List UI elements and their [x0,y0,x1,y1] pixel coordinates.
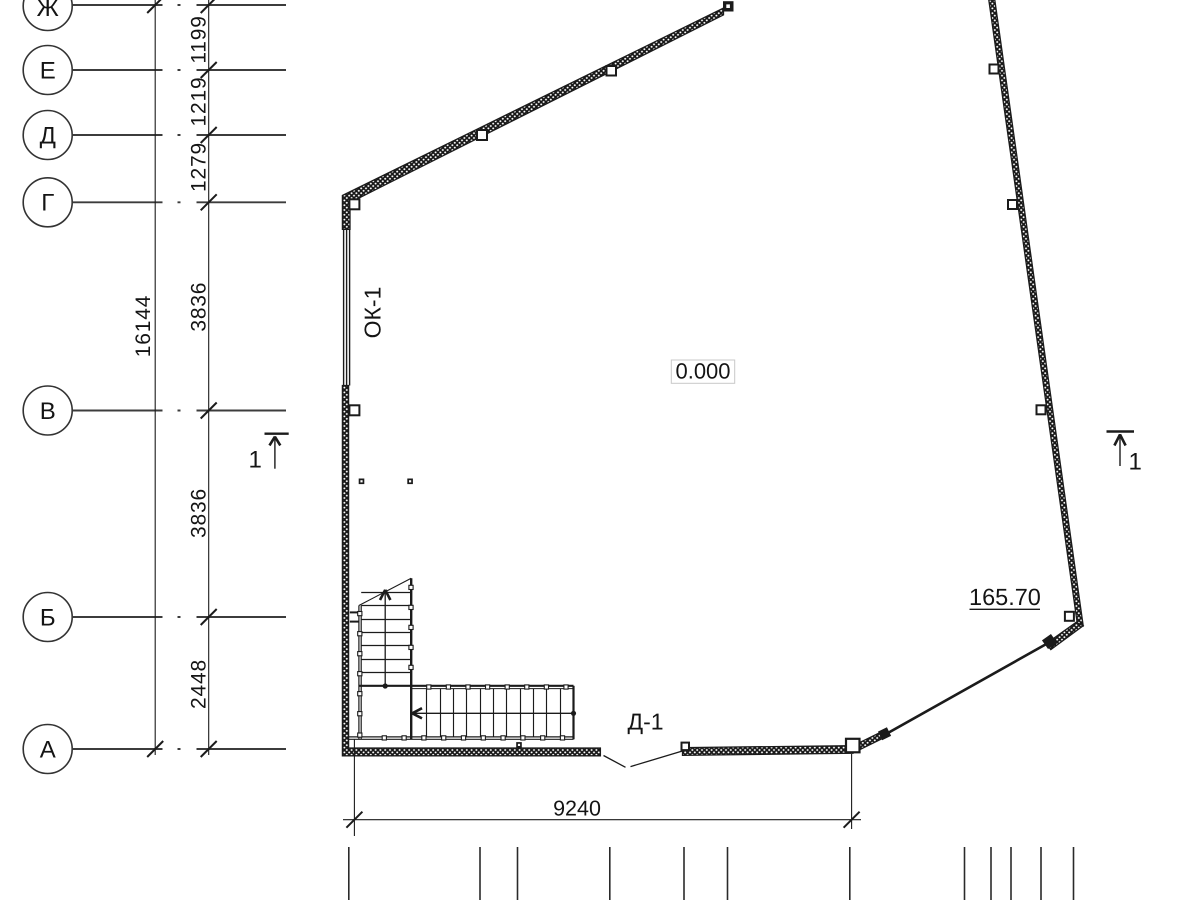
svg-text:165.70: 165.70 [969,584,1041,610]
svg-text:А: А [40,736,56,763]
svg-text:16144: 16144 [132,295,155,357]
svg-text:9240: 9240 [553,797,601,821]
svg-text:1: 1 [249,447,262,474]
svg-text:ОК-1: ОК-1 [360,287,386,339]
svg-text:Е: Е [40,57,56,84]
svg-text:Ж: Ж [37,0,59,22]
svg-text:1219: 1219 [187,77,210,127]
svg-text:Г: Г [41,190,54,217]
svg-text:1: 1 [1129,449,1142,476]
svg-text:0.000: 0.000 [675,359,730,384]
svg-text:Д: Д [40,122,56,149]
svg-text:3836: 3836 [187,488,210,538]
svg-text:1199: 1199 [187,15,210,63]
svg-text:1279: 1279 [187,142,210,192]
svg-text:Б: Б [40,604,56,631]
svg-text:3836: 3836 [187,282,210,332]
svg-text:Д-1: Д-1 [628,709,664,735]
svg-text:2448: 2448 [187,659,210,709]
svg-text:В: В [40,398,56,425]
